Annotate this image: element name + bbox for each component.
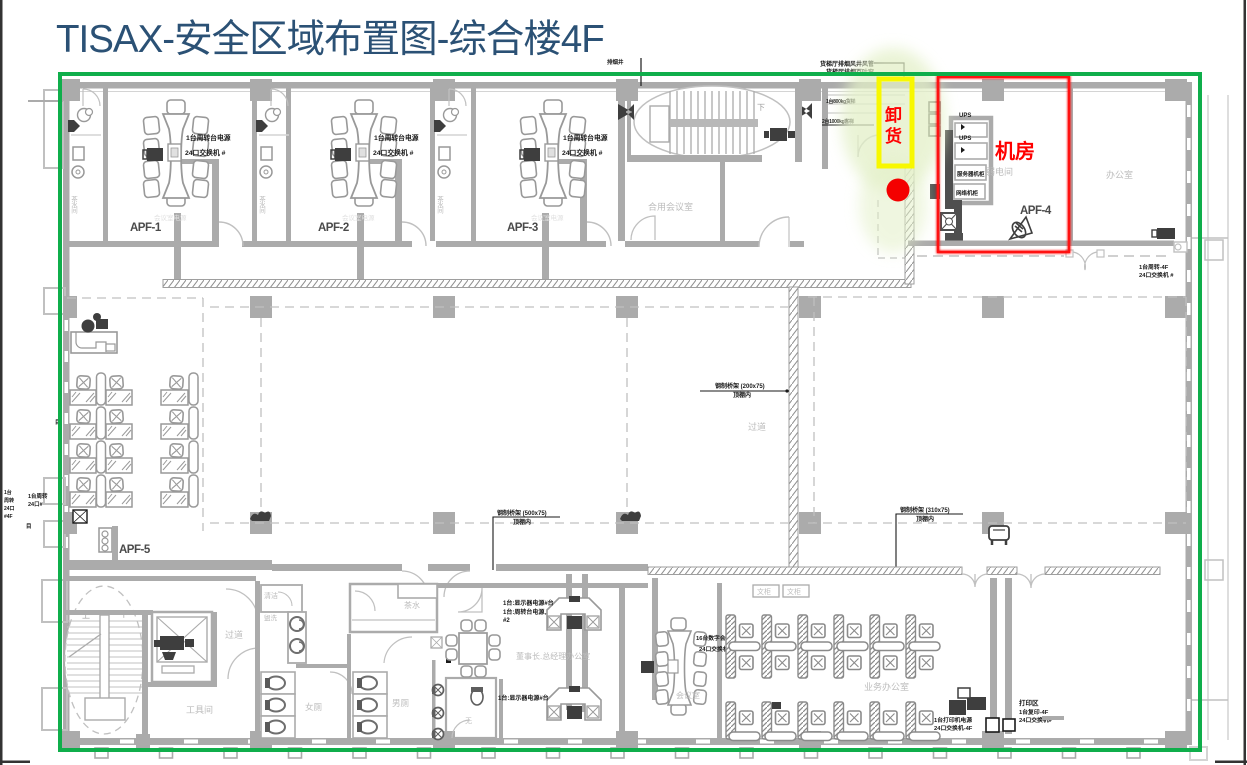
svg-text:APF-5: APF-5 — [119, 544, 151, 556]
svg-text:1台周转: 1台周转 — [28, 492, 48, 500]
svg-text:APF-3: APF-3 — [507, 222, 538, 234]
svg-text:1台打印机电源: 1台打印机电源 — [934, 716, 972, 724]
svg-text:顶棚内: 顶棚内 — [513, 518, 531, 526]
svg-text:周转: 周转 — [4, 497, 14, 504]
svg-text:1台周转台电源: 1台周转台电源 — [374, 133, 419, 142]
svg-text:24口交换机 #: 24口交换机 # — [373, 148, 414, 157]
svg-text:服务器机柜: 服务器机柜 — [957, 170, 985, 178]
svg-text:1台:显示器电源#台: 1台:显示器电源#台 — [503, 599, 554, 607]
svg-text:24口: 24口 — [4, 506, 15, 512]
svg-text:1台周转-4F: 1台周转-4F — [1139, 263, 1169, 271]
svg-text:过道: 过道 — [748, 421, 766, 432]
svg-text:会议室电源: 会议室电源 — [154, 213, 187, 222]
svg-text:文柜: 文柜 — [787, 587, 801, 596]
svg-text:机房: 机房 — [995, 139, 1035, 163]
svg-text:顶棚内: 顶棚内 — [916, 515, 934, 523]
svg-text:清洁: 清洁 — [264, 591, 278, 600]
svg-text:董事长.总经理办公室: 董事长.总经理办公室 — [516, 651, 590, 661]
svg-text:24口#: 24口# — [28, 501, 43, 508]
svg-text:女厕: 女厕 — [305, 702, 323, 712]
svg-text:会议室: 会议室 — [676, 690, 700, 700]
svg-text:网络机柜: 网络机柜 — [956, 189, 979, 197]
svg-text:目: 目 — [26, 522, 32, 530]
svg-text:TISAX-安全区域布置图-综合楼4F: TISAX-安全区域布置图-综合楼4F — [56, 18, 604, 61]
svg-text:会议室电源: 会议室电源 — [531, 213, 564, 222]
svg-text:顶棚内: 顶棚内 — [733, 391, 751, 399]
svg-text:APF-2: APF-2 — [318, 222, 349, 234]
svg-text:卸: 卸 — [885, 105, 902, 125]
svg-text:打印区: 打印区 — [1019, 698, 1039, 707]
svg-text:1台周转台电源: 1台周转台电源 — [563, 133, 608, 142]
svg-text:24口交换机-4F: 24口交换机-4F — [934, 724, 973, 732]
svg-text:合用会议室: 合用会议室 — [648, 201, 693, 212]
svg-text:钢制桥架 (310x75): 钢制桥架 (310x75) — [900, 506, 950, 514]
svg-text:男厕: 男厕 — [392, 698, 410, 708]
svg-text:排烟井: 排烟井 — [607, 58, 624, 66]
svg-text:UPS: UPS — [959, 113, 971, 119]
svg-text:工具间: 工具间 — [186, 704, 213, 715]
svg-text:货: 货 — [885, 126, 902, 146]
svg-text:1台周转台电源: 1台周转台电源 — [186, 133, 231, 142]
svg-text:办公室: 办公室 — [1106, 169, 1133, 180]
svg-text:盥洗: 盥洗 — [264, 613, 278, 622]
svg-text:1台:显示器电源#台: 1台:显示器电源#台 — [498, 694, 549, 702]
svg-text:1台复印-4F: 1台复印-4F — [1019, 708, 1049, 716]
svg-text:APF-1: APF-1 — [130, 222, 162, 234]
svg-text:弱电间: 弱电间 — [986, 166, 1013, 177]
svg-text:会议室电源: 会议室电源 — [342, 213, 375, 222]
svg-text:APF-4: APF-4 — [1020, 205, 1052, 217]
svg-text:钢制桥架 (200x75): 钢制桥架 (200x75) — [715, 382, 765, 390]
svg-text:24口交换机 #: 24口交换机 # — [562, 148, 603, 157]
svg-text:#2: #2 — [503, 618, 510, 624]
svg-text:24口交换机 #: 24口交换机 # — [1139, 271, 1174, 279]
svg-text:24口交换机 #: 24口交换机 # — [185, 148, 226, 157]
svg-text:#4F: #4F — [4, 514, 13, 520]
svg-text:钢制桥架 (500x75): 钢制桥架 (500x75) — [497, 509, 547, 517]
svg-text:UPS: UPS — [959, 136, 971, 142]
svg-text:茶水: 茶水 — [404, 600, 420, 610]
svg-text:文柜: 文柜 — [757, 587, 771, 596]
svg-text:1台: 1台 — [4, 489, 12, 496]
svg-text:过道: 过道 — [225, 629, 243, 640]
svg-text:业务办公室: 业务办公室 — [864, 681, 909, 692]
svg-text:下: 下 — [757, 103, 765, 112]
